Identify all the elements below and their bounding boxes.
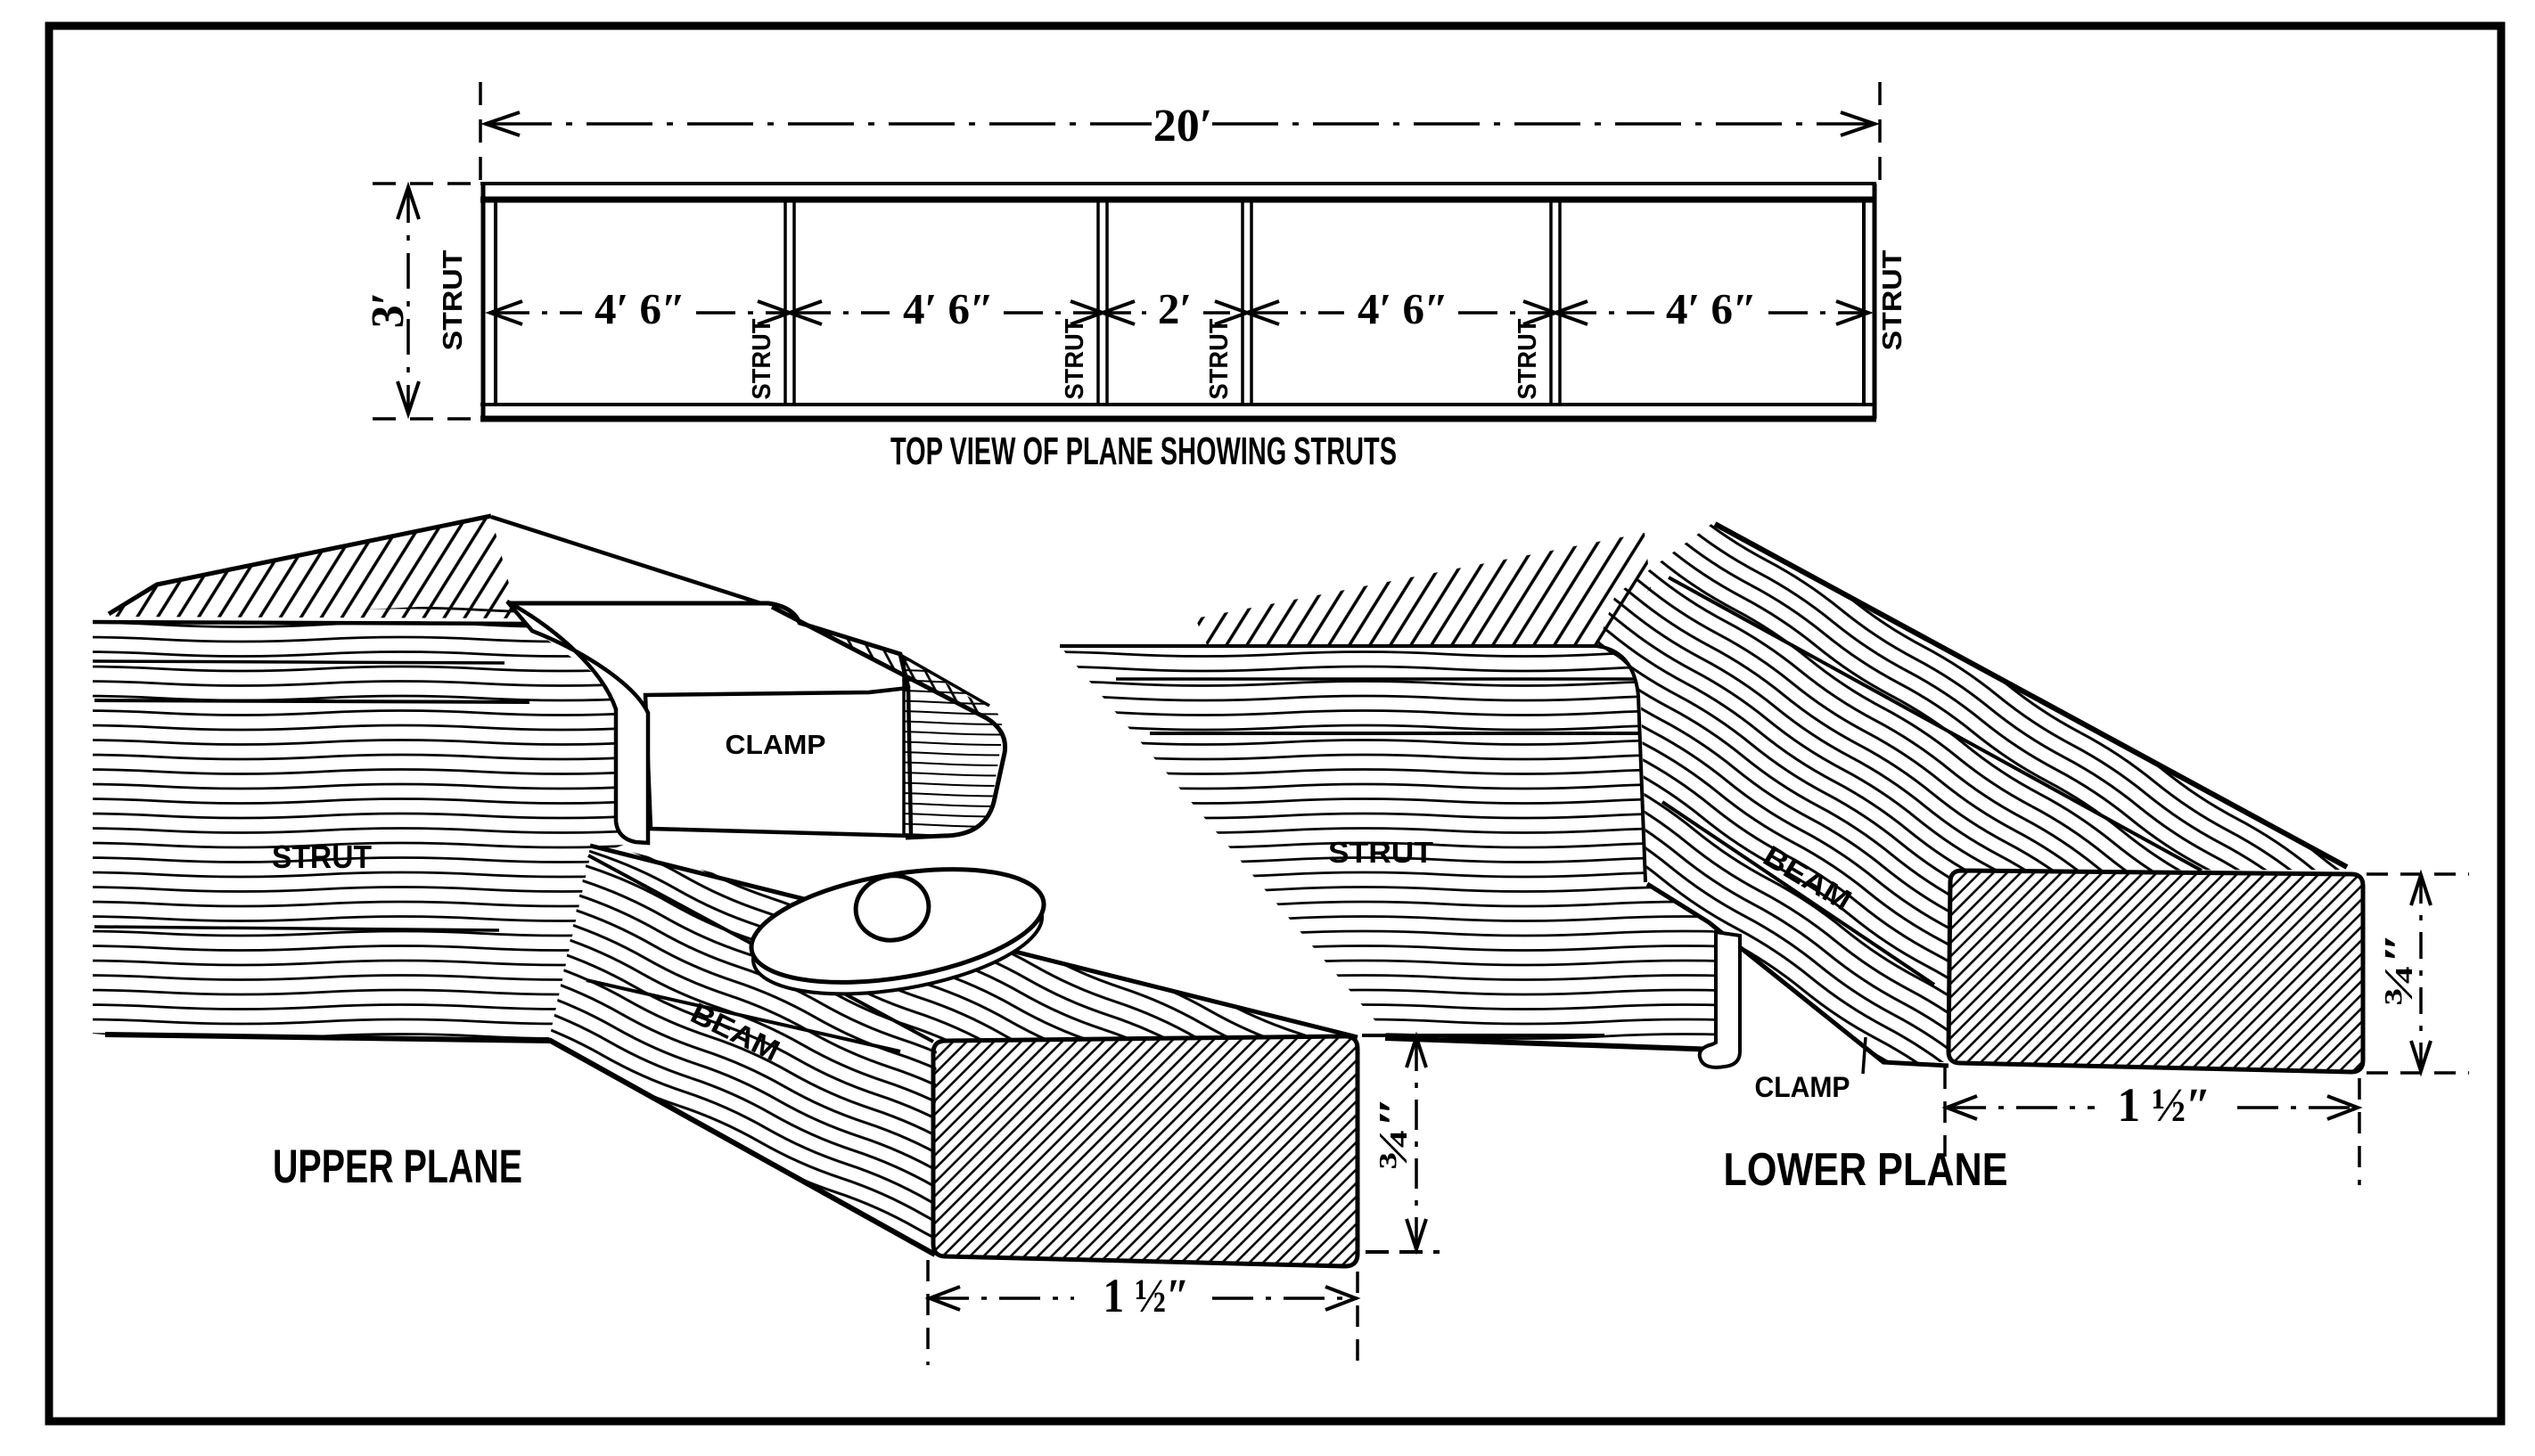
- svg-text:2′: 2′: [1158, 284, 1192, 333]
- svg-text:STRUT: STRUT: [437, 249, 468, 350]
- svg-text:STRUT: STRUT: [272, 838, 372, 875]
- svg-text:CLAMP: CLAMP: [1755, 1071, 1850, 1103]
- svg-text:4′ 6″: 4′ 6″: [903, 284, 994, 333]
- svg-text:1 ½″: 1 ½″: [1103, 1269, 1190, 1322]
- svg-text:4′ 6″: 4′ 6″: [1358, 284, 1448, 333]
- svg-text:STRUT: STRUT: [1876, 249, 1907, 350]
- svg-text:¾″: ¾″: [1370, 1096, 1415, 1171]
- svg-text:UPPER PLANE: UPPER PLANE: [273, 1141, 522, 1193]
- svg-text:STRUT: STRUT: [1514, 318, 1542, 399]
- svg-text:STRUT: STRUT: [1328, 836, 1433, 869]
- svg-text:20′: 20′: [1153, 101, 1213, 151]
- svg-text:1 ½″: 1 ½″: [2118, 1078, 2211, 1132]
- svg-text:4′ 6″: 4′ 6″: [1666, 284, 1757, 333]
- svg-text:LOWER PLANE: LOWER PLANE: [1724, 1144, 2008, 1196]
- svg-text:STRUT: STRUT: [748, 318, 776, 399]
- svg-text:3′: 3′: [363, 292, 414, 329]
- svg-text:STRUT: STRUT: [1061, 318, 1089, 399]
- svg-text:¾″: ¾″: [2375, 932, 2421, 1007]
- svg-text:4′ 6″: 4′ 6″: [595, 284, 685, 333]
- svg-text:STRUT: STRUT: [1205, 318, 1234, 399]
- svg-text:CLAMP: CLAMP: [726, 729, 826, 760]
- svg-text:TOP VIEW OF PLANE SHOWING STRU: TOP VIEW OF PLANE SHOWING STRUTS: [890, 429, 1397, 473]
